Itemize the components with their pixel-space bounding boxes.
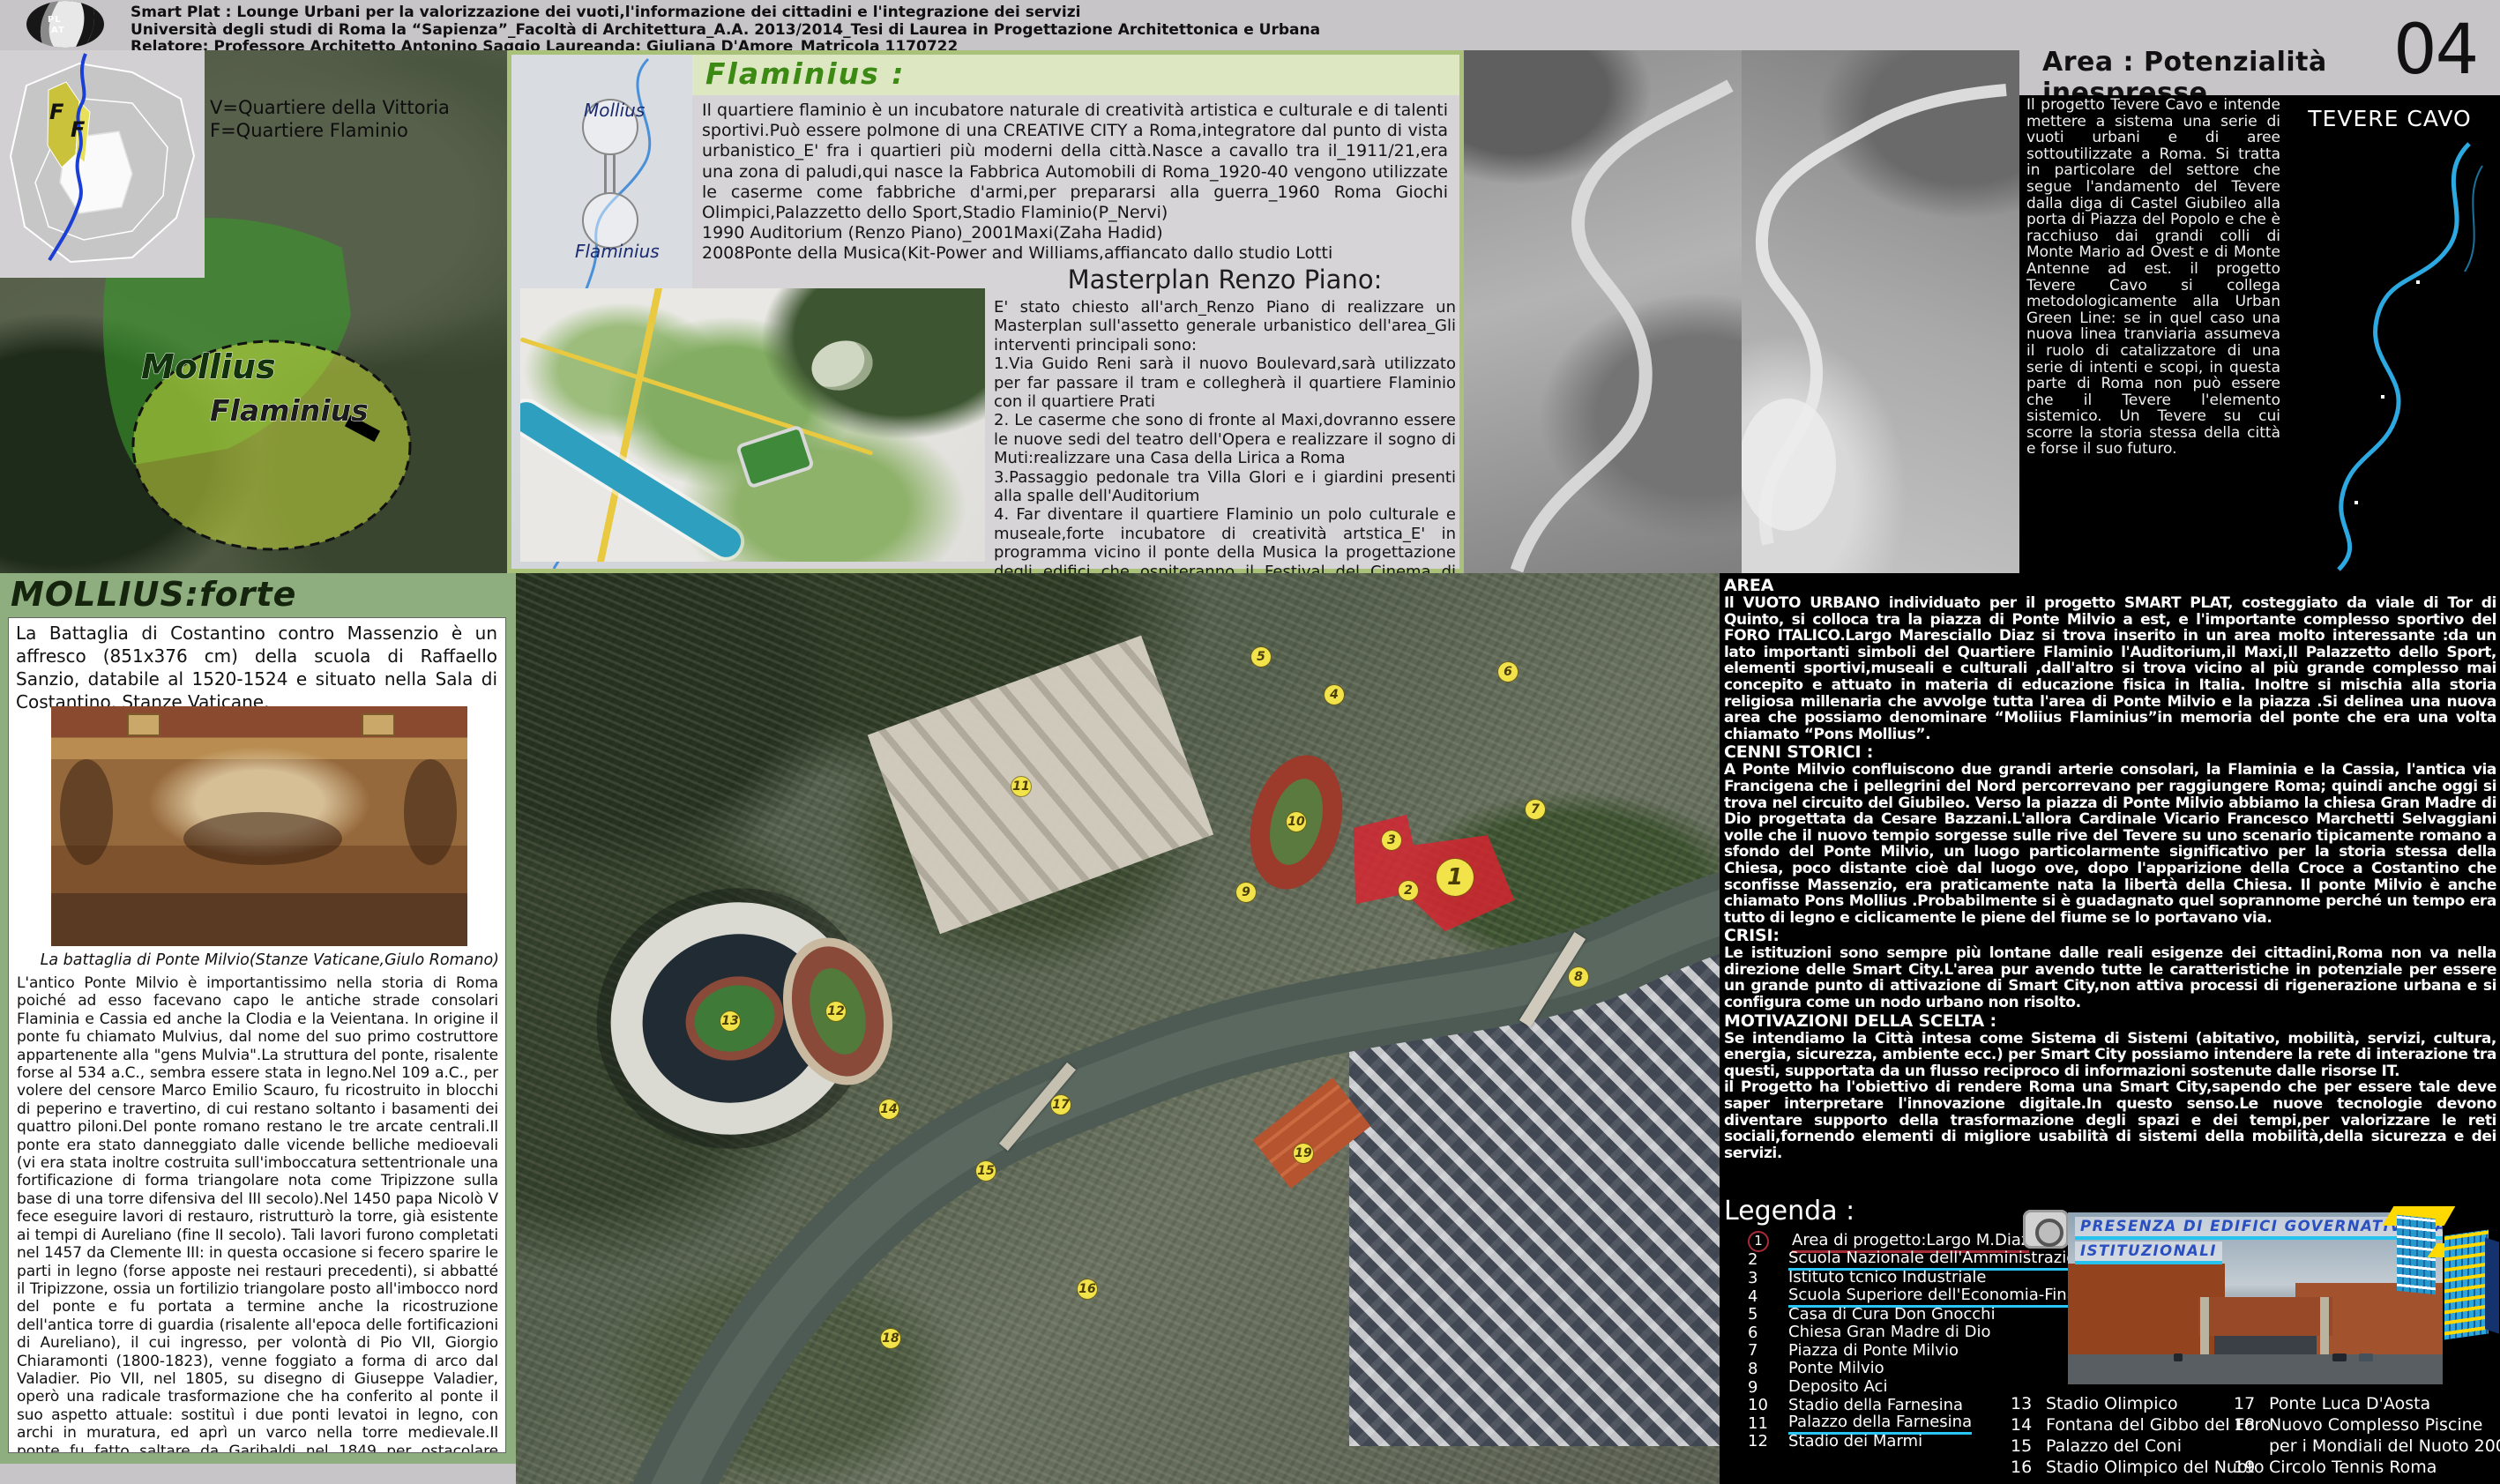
area-text-sections: AREAIl VUOTO URBANO individuato per il p…: [1724, 576, 2496, 1161]
legend-number: 12: [1748, 1432, 1788, 1450]
plan-stadium: [735, 424, 815, 489]
legend-number: 1: [1748, 1231, 1769, 1252]
legend-number: 7: [1748, 1341, 1788, 1360]
area-section-body: Il VUOTO URBANO individuato per il proge…: [1724, 595, 2496, 742]
legend-column-2: 13Stadio Olimpico14Fontana del Gibbo del…: [2011, 1393, 2272, 1478]
logo-letters-bottom: AT: [51, 26, 65, 35]
brick-bridge: [2198, 1297, 2332, 1336]
legend-number: 9: [1748, 1378, 1788, 1397]
legend-label: Nuovo Complesso Piscine: [2269, 1415, 2482, 1436]
fresco-figure: [183, 812, 342, 865]
aerial-marker-6: 6: [1498, 662, 1518, 682]
logo-swoosh-icon: [30, 1, 104, 48]
legend-number: 6: [1748, 1324, 1788, 1342]
inset-letter-f2: F: [71, 117, 86, 142]
aerial-marker-10: 10: [1287, 812, 1306, 831]
legend-item-7: 7Piazza di Ponte Milvio: [1748, 1342, 2105, 1361]
legend-item-18-cont: per i Mondiali del Nuoto 2009: [2234, 1436, 2500, 1457]
legend-number: 5: [1748, 1305, 1788, 1324]
fresco-plaque: [362, 713, 395, 736]
legend-number: 10: [1748, 1396, 1788, 1414]
aerial-marker-19: 19: [1294, 1144, 1313, 1163]
legend-number: 3: [1748, 1269, 1788, 1287]
aerial-marker-11: 11: [1011, 777, 1031, 796]
bw1-river: [1464, 50, 1742, 573]
legend-label: per i Mondiali del Nuoto 2009: [2269, 1436, 2500, 1457]
smart-plat-logo: PL AT: [26, 1, 104, 48]
aerial-photo: 12345678910111213141516171819: [516, 573, 1720, 1484]
legend-number: 16: [2011, 1458, 2046, 1477]
aerial-marker-8: 8: [1569, 967, 1588, 987]
header-text: Smart Plat : Lounge Urbani per la valori…: [131, 4, 1320, 56]
masterplan-body-text: E' stato chiesto all'arch_Renzo Piano di…: [994, 298, 1456, 600]
legend-number: 4: [1748, 1287, 1788, 1306]
sheet-number: 04: [2393, 11, 2477, 90]
rome-districts-inset: F F: [0, 50, 205, 278]
legend-item-14: 14Fontana del Gibbo del Foro: [2011, 1414, 2272, 1436]
map-key: V=Quartiere della Vittoria F=Quartiere F…: [210, 96, 450, 142]
fresco-figure: [404, 759, 457, 865]
map-key-line2: F=Quartiere Flaminio: [210, 119, 450, 142]
diagram-flaminius-label: Flaminius: [575, 241, 660, 262]
aerial-marker-14: 14: [879, 1100, 899, 1119]
aerial-marker-16: 16: [1078, 1279, 1097, 1299]
legend-item-6: 6Chiesa Gran Madre di Dio: [1748, 1324, 2105, 1342]
flaminius-title: Flaminius :: [705, 56, 905, 91]
plan-road: [596, 288, 663, 562]
aerial-marker-9: 9: [1236, 883, 1256, 902]
legend-label: Stadio Olimpico: [2046, 1394, 2178, 1414]
aerial-marker-12: 12: [826, 1002, 846, 1021]
tevere-cavo-text: Il progetto Tevere Cavo e intende metter…: [2026, 97, 2280, 458]
area-panel: AREAIl VUOTO URBANO individuato per il p…: [1720, 573, 2500, 1484]
legend-label: Ponte Luca D'Aosta: [2269, 1394, 2430, 1414]
map-key-line1: V=Quartiere della Vittoria: [210, 96, 450, 119]
aerial-marker-2: 2: [1399, 881, 1418, 900]
car: [2359, 1353, 2373, 1361]
legend-label: Stadio dei Marmi: [1788, 1432, 1922, 1451]
mollius-intro-text: La Battaglia di Costantino contro Massen…: [16, 622, 497, 713]
legend-label: Casa di Cura Don Gnocchi: [1788, 1305, 1996, 1324]
legend-item-13: 13Stadio Olimpico: [2011, 1393, 2272, 1414]
fresco-caption: La battaglia di Ponte Milvio(Stanze Vati…: [9, 951, 499, 969]
diagram-mollius-label: Mollius: [584, 100, 645, 121]
flaminius-body-text: Il quartiere flaminio è un incubatore na…: [702, 101, 1448, 265]
legend-item-15: 15Palazzo del Coni: [2011, 1436, 2272, 1457]
car: [2332, 1353, 2347, 1361]
legend-item-8: 8Ponte Milvio: [1748, 1360, 2105, 1378]
legend-number: 13: [2011, 1394, 2046, 1413]
legend-label: Palazzo del Coni: [2046, 1436, 2182, 1457]
legend-label: Chiesa Gran Madre di Dio: [1788, 1323, 1991, 1342]
legend-item-18: 18Nuovo Complesso Piscine: [2234, 1414, 2500, 1436]
legend-label: Deposito Aci: [1788, 1377, 1887, 1397]
area-section-heading: CENNI STORICI :: [1724, 743, 2496, 762]
aerial-marker-3: 3: [1382, 831, 1401, 850]
area-section-heading: CRISI:: [1724, 927, 2496, 945]
legend-number: 14: [2011, 1415, 2046, 1435]
legend-number: 17: [2234, 1394, 2269, 1413]
historical-aerial-photo-1: [1464, 50, 1742, 573]
mollius-box: MOLLIUS:forte toponomastica La Battaglia…: [0, 573, 516, 1464]
masterplan-plan-image: [520, 288, 985, 562]
legend-label: Piazza di Ponte Milvio: [1788, 1341, 1959, 1361]
road: [2068, 1354, 2443, 1384]
area-section-body: Le istituzioni sono sempre più lontane d…: [1724, 945, 2496, 1010]
aerial-marker-5: 5: [1251, 647, 1271, 667]
legend-label: Stadio Olimpico del Nuoto: [2046, 1458, 2265, 1478]
area-section-body: Se intendiamo la Città intesa come Siste…: [1724, 1031, 2496, 1162]
fresco-figure: [60, 759, 113, 865]
mollius-content: La Battaglia di Costantino contro Massen…: [8, 617, 506, 1453]
tevere-cavo-title: TEVERE CAVO: [2284, 106, 2496, 131]
aerial-marker-1: 1: [1437, 859, 1474, 896]
camera-lens-icon: [2035, 1219, 2063, 1247]
legend-label: Ponte Milvio: [1788, 1359, 1884, 1378]
flaminius-node: [583, 193, 638, 248]
aerial-marker-7: 7: [1526, 800, 1545, 819]
legend-item-19: 19Circolo Tennis Roma: [2234, 1457, 2500, 1478]
masterplan-title: Masterplan Renzo Piano:: [992, 265, 1458, 295]
scooter: [2174, 1353, 2183, 1361]
inset-letter-f1: F: [49, 100, 64, 124]
aerial-marker-13: 13: [720, 1011, 740, 1031]
legend-column-3: 17Ponte Luca D'Aosta18Nuovo Complesso Pi…: [2234, 1393, 2500, 1478]
legend-item-17: 17Ponte Luca D'Aosta: [2234, 1393, 2500, 1414]
marker-layer: 12345678910111213141516171819: [516, 573, 1720, 1484]
legend-item-4: 4Scuola Superiore dell'Economia-Finanze: [1748, 1287, 2105, 1306]
bw2-river: [1742, 50, 2019, 573]
site-photo-caption-line2: ISTITUZIONALI: [2075, 1242, 2222, 1264]
illustration-tower-right: [2444, 1229, 2489, 1339]
camera-icon: [2023, 1210, 2069, 1249]
aerial-marker-15: 15: [976, 1161, 996, 1181]
mollius-body-text: L'antico Ponte Milvio è importantissimo …: [17, 974, 498, 1453]
pylon: [2320, 1297, 2329, 1361]
mollius-map-label: Mollius: [141, 347, 276, 386]
plan-auditorium: [806, 334, 878, 397]
overview-map: Mollius Flaminius F F V=Quartiere della …: [0, 50, 516, 573]
area-section-heading: AREA: [1724, 577, 2496, 595]
aerial-marker-4: 4: [1325, 685, 1344, 705]
poster-root: PL AT Smart Plat : Lounge Urbani per la …: [0, 0, 2500, 1484]
legend-number: 8: [1748, 1360, 1788, 1378]
illustration-tower-side: [2485, 1237, 2499, 1333]
legend-number: 18: [2234, 1415, 2269, 1435]
historical-aerial-photo-2: [1742, 50, 2019, 573]
aerial-marker-17: 17: [1051, 1095, 1071, 1115]
legend-label: Circolo Tennis Roma: [2269, 1458, 2437, 1478]
logo-letters-top: PL: [48, 15, 62, 25]
institutional-buildings-illustration: [2381, 1208, 2500, 1342]
aerial-marker-18: 18: [881, 1329, 900, 1348]
tevere-river-map: [2284, 131, 2500, 571]
legend-number: 11: [1748, 1414, 1788, 1433]
legend-item-2: 2Scuola Nazionale dell'Amministrazione: [1748, 1251, 2105, 1270]
flaminius-panel: Mollius Flaminius Flaminius : Il quartie…: [507, 50, 1464, 573]
legend-item-5: 5Casa di Cura Don Gnocchi: [1748, 1305, 2105, 1324]
fresco-plaque: [127, 713, 160, 736]
legend-item-16: 16Stadio Olimpico del Nuoto: [2011, 1457, 2272, 1478]
header-title: Smart Plat : Lounge Urbani per la valori…: [131, 4, 1320, 22]
header-university: Università degli studi di Roma la “Sapie…: [131, 22, 1320, 40]
pylon: [2200, 1297, 2209, 1361]
legend-number: 2: [1748, 1250, 1788, 1269]
battle-fresco-image: [51, 706, 467, 946]
flaminius-map-label: Flaminius: [210, 393, 369, 428]
legend-number: 19: [2234, 1458, 2269, 1477]
legend-number: 15: [2011, 1436, 2046, 1456]
area-section-heading: MOTIVAZIONI DELLA SCELTA :: [1724, 1012, 2496, 1031]
area-section-body: A Ponte Milvio confluiscono due grandi a…: [1724, 762, 2496, 926]
legend-title: Legenda :: [1724, 1196, 1854, 1227]
tevere-cavo-panel: Il progetto Tevere Cavo e intende metter…: [2019, 95, 2500, 573]
